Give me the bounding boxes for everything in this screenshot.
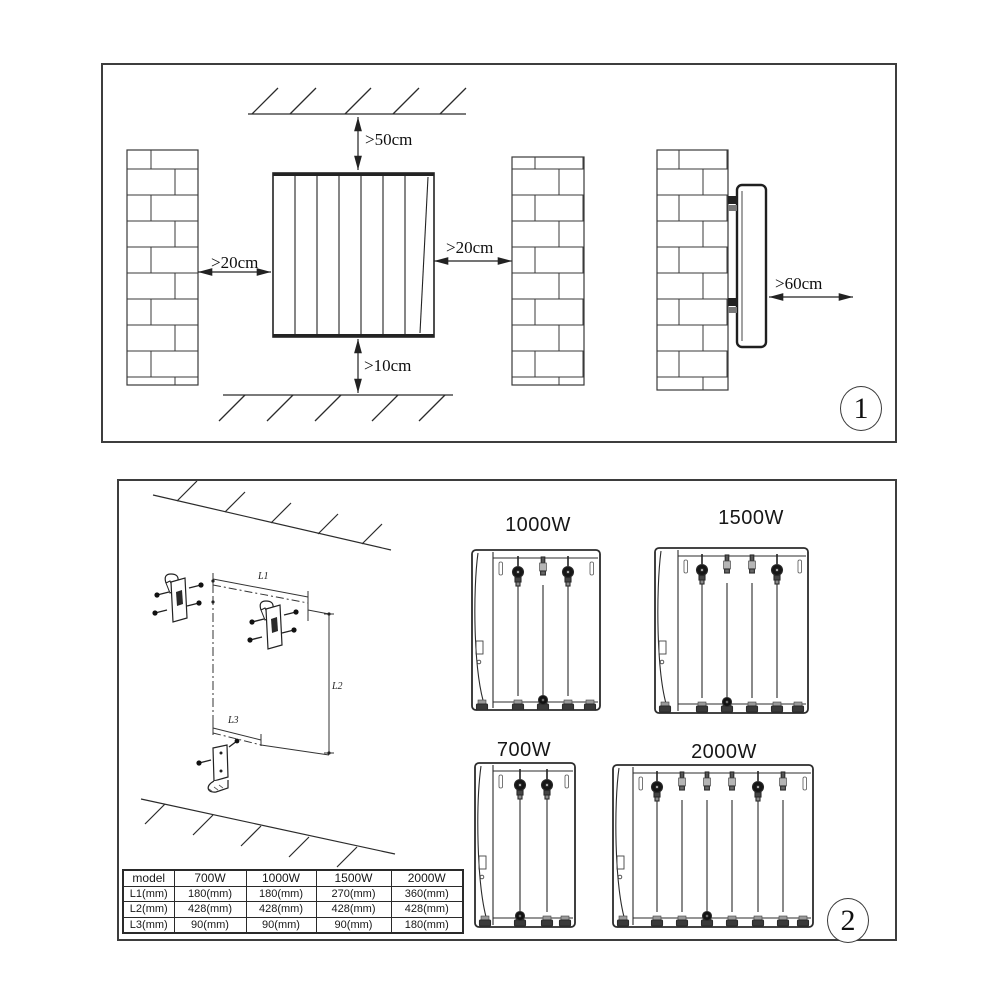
front-clearance-label: >60cm (775, 274, 822, 294)
wall-side-view (657, 150, 728, 390)
model-label-1000w: 1000W (498, 514, 578, 537)
table-header-2000w: 2000W (391, 870, 463, 886)
model-label-2000w: 2000W (684, 741, 764, 764)
panel-mounting-and-models: L1 L2 L3 1000W 1500W 700W 2000W model 70… (117, 479, 897, 941)
radiator-top-view-1500w (655, 548, 808, 713)
cell: 428(mm) (246, 902, 316, 918)
bottom-clearance-label: >10cm (364, 356, 411, 376)
drain-knob-icon (723, 698, 732, 707)
right-clearance-label: >20cm (446, 238, 493, 258)
floor-hatch-iso (141, 799, 395, 867)
row-label: L1(mm) (123, 886, 174, 902)
cell: 180(mm) (246, 886, 316, 902)
table-header-1500w: 1500W (316, 870, 391, 886)
row-label: L3(mm) (123, 917, 174, 933)
dim-label-l1: L1 (258, 571, 269, 582)
figure-number-badge: 2 (827, 898, 869, 943)
wall-left (127, 150, 198, 385)
radiator-top-view-700w (475, 763, 575, 927)
table-header-model: model (123, 870, 174, 886)
radiator-side-view (728, 185, 766, 347)
panel-installation-clearances: >50cm >20cm >20cm >10cm >60cm 1 (101, 63, 897, 443)
cell: 180(mm) (391, 917, 463, 933)
figure-number-badge: 1 (840, 386, 882, 431)
figure-number: 2 (841, 904, 856, 938)
table-header-700w: 700W (174, 870, 246, 886)
cell: 90(mm) (246, 917, 316, 933)
ceiling-hatch-iso (153, 481, 391, 550)
wall-bracket-upper-right (247, 601, 298, 649)
floor-bracket-lower (196, 739, 239, 792)
table-row-l3: L3(mm) 90(mm) 90(mm) 90(mm) 180(mm) (123, 917, 463, 933)
cell: 428(mm) (391, 902, 463, 918)
wall-bracket-marks (728, 196, 737, 313)
wall-bracket-upper-left (152, 574, 203, 622)
cell: 90(mm) (316, 917, 391, 933)
cell: 428(mm) (174, 902, 246, 918)
drain-knob-icon (539, 696, 548, 705)
floor-hatch (219, 395, 453, 421)
table-row-l1: L1(mm) 180(mm) 180(mm) 270(mm) 360(mm) (123, 886, 463, 902)
dim-label-l3: L3 (228, 715, 239, 726)
dim-label-l2: L2 (332, 681, 343, 692)
wall-right (512, 157, 584, 385)
dimension-lines (211, 573, 334, 755)
cell: 90(mm) (174, 917, 246, 933)
cell: 428(mm) (316, 902, 391, 918)
dimension-table: model 700W 1000W 1500W 2000W L1(mm) 180(… (122, 869, 464, 934)
radiator-front-view (273, 173, 434, 337)
row-label: L2(mm) (123, 902, 174, 918)
model-label-1500w: 1500W (711, 507, 791, 530)
figure-number: 1 (854, 392, 869, 426)
manual-page: { "doc": { "background": "#ffffff", "lin… (0, 0, 1000, 1000)
model-label-700w: 700W (484, 739, 564, 762)
radiator-top-view-2000w (613, 765, 813, 927)
ceiling-hatch (248, 88, 466, 114)
drain-knob-icon (703, 912, 712, 921)
table-row-l2: L2(mm) 428(mm) 428(mm) 428(mm) 428(mm) (123, 902, 463, 918)
top-clearance-label: >50cm (365, 130, 412, 150)
cell: 360(mm) (391, 886, 463, 902)
left-clearance-label: >20cm (211, 253, 258, 273)
drain-knob-icon (516, 912, 525, 921)
cell: 180(mm) (174, 886, 246, 902)
table-header-row: model 700W 1000W 1500W 2000W (123, 870, 463, 886)
table-header-1000w: 1000W (246, 870, 316, 886)
radiator-top-view-1000w (472, 550, 600, 710)
cell: 270(mm) (316, 886, 391, 902)
